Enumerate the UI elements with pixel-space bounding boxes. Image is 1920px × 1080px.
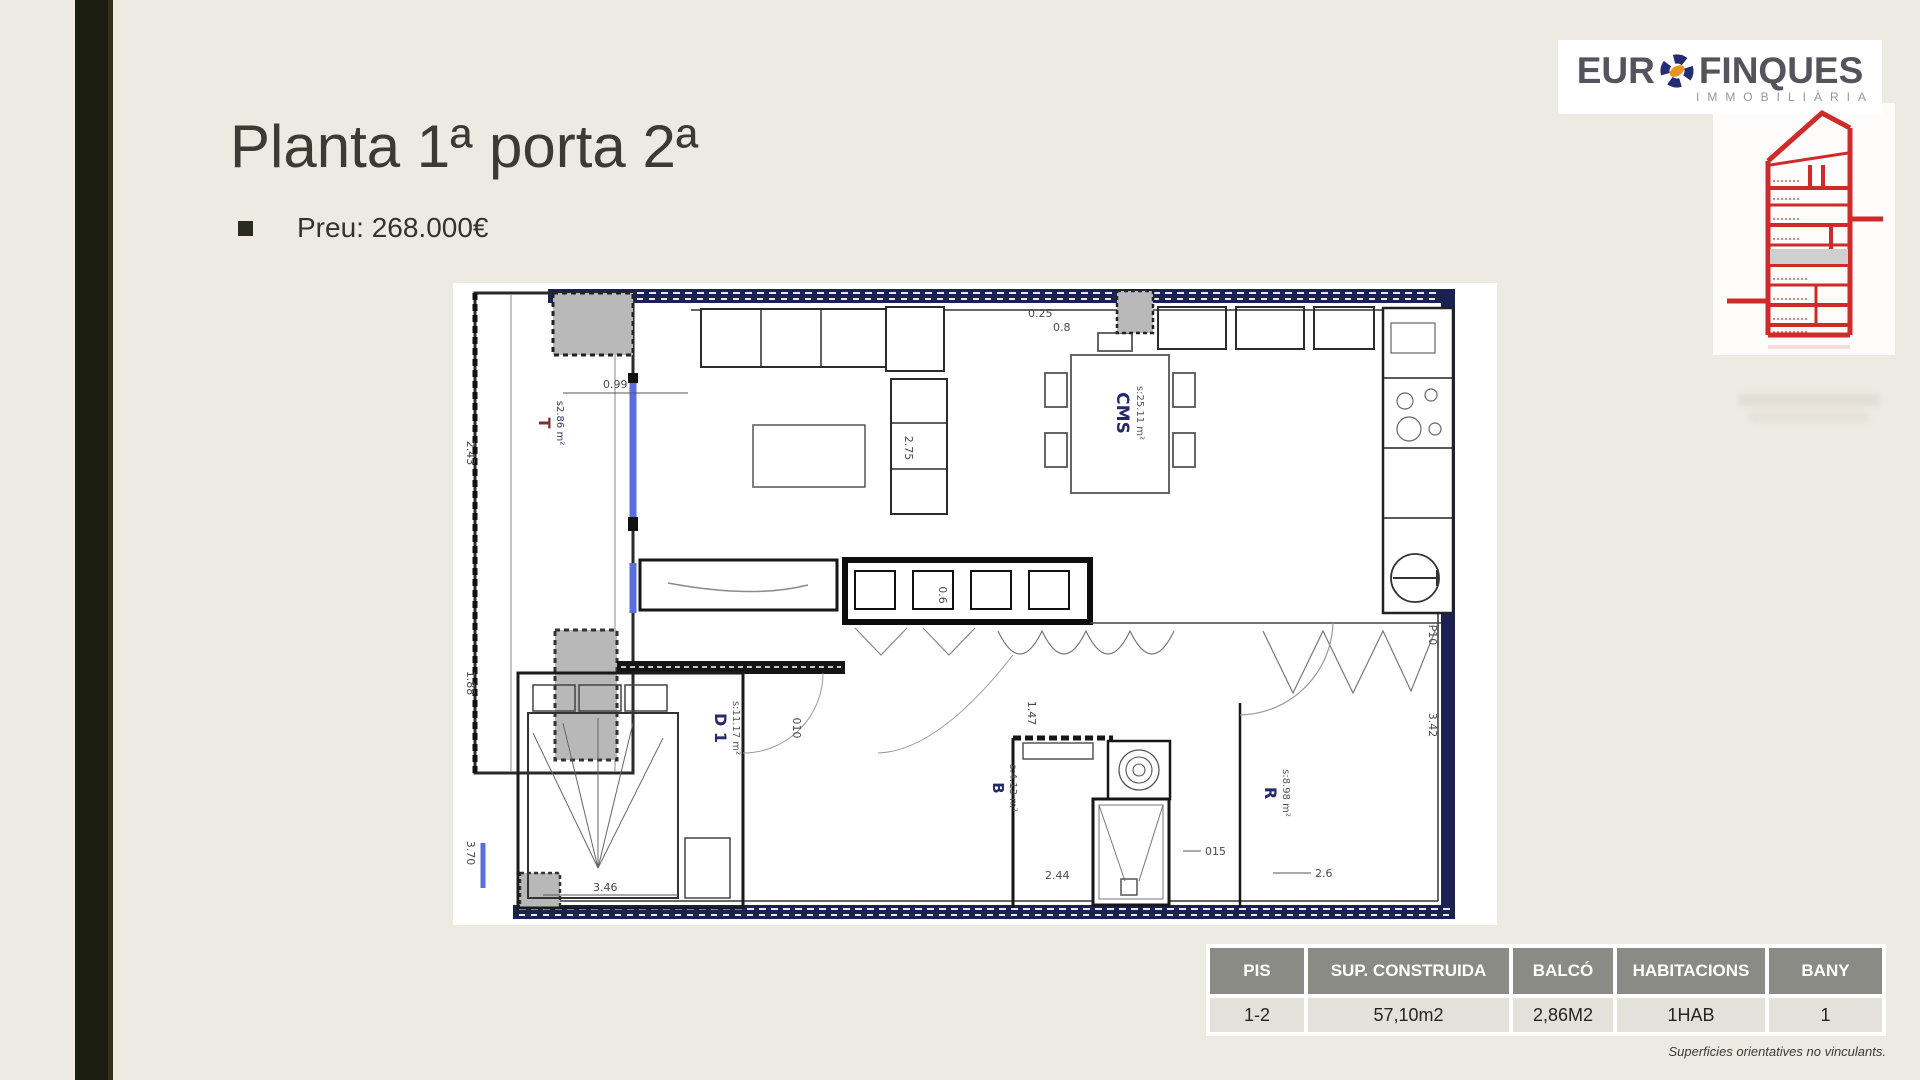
room-label-D1: D 1 [711,713,730,743]
page-title: Planta 1ª porta 2ª [230,112,698,181]
header-cell-habitacions: HABITACIONS [1617,948,1765,994]
cell-bany: 1 [1769,998,1882,1032]
svg-text:2.43: 2.43 [464,441,477,466]
cell-sup-construida: 57,10m2 [1308,998,1509,1032]
building-sketch-svg [1713,103,1895,355]
svg-text:0.8: 0.8 [1053,321,1071,334]
kitchen [1383,308,1453,613]
floor-plan: T s2.86 m² CMS s:25.11 m² D 1 s:11.17 m²… [453,283,1497,925]
room-area-D1: s:11.17 m² [730,701,741,755]
svg-text:P10: P10 [1426,625,1439,646]
living-room-furniture [701,307,947,514]
room-label-B: B [989,782,1007,793]
building-section-sketch [1713,103,1895,355]
header-cell-pis: PIS [1210,948,1304,994]
svg-text:2.75: 2.75 [902,436,915,461]
floor-plan-svg: T s2.86 m² CMS s:25.11 m² D 1 s:11.17 m²… [453,283,1497,925]
header-cell-sup-construida: SUP. CONSTRUIDA [1308,948,1509,994]
spec-table: PIS SUP. CONSTRUIDA BALCÓ HABITACIONS BA… [1206,944,1886,1036]
room-label-R: R [1261,787,1280,799]
svg-text:0.25: 0.25 [1028,307,1053,320]
svg-text:0.99: 0.99 [603,378,628,391]
sketch-background [1713,103,1895,355]
closet-arcs [998,623,1435,715]
tv-sideboard [640,560,837,610]
table-footnote: Superficies orientatives no vinculants. [1206,1044,1886,1059]
spec-table-data-row: 1-2 57,10m2 2,86M2 1HAB 1 [1210,998,1882,1032]
cell-balco: 2,86M2 [1513,998,1613,1032]
room-area-R: s:8.98 m² [1280,769,1291,817]
interior-walls [483,623,1441,908]
left-accent-bar [75,0,112,1080]
logo-subtitle: IMMOBILIÀRIA [1564,90,1876,104]
svg-text:3.42: 3.42 [1426,713,1439,738]
cell-habitacions: 1HAB [1617,998,1765,1032]
room-area-B: s:4.13 m² [1007,764,1018,812]
price-label: Preu: 268.000€ [297,212,489,244]
header-cell-balco: BALCÓ [1513,948,1613,994]
top-wall-hatch [1117,291,1153,333]
cell-pis: 1-2 [1210,998,1304,1032]
svg-text:3.70: 3.70 [464,841,477,866]
wardrobe [845,560,1090,655]
room-area-CMS: s:25.11 m² [1134,386,1145,440]
svg-text:010: 010 [790,718,803,739]
pinwheel-logo-icon [1658,52,1696,90]
room-area-T: s2.86 m² [554,401,565,445]
upper-cabinets [1158,307,1374,349]
room-label-T: T [535,418,554,429]
building-reflection [1735,392,1887,432]
logo-word-finques: FINQUES [1699,50,1863,92]
left-accent-bar-edge [108,0,113,1080]
bullet-icon [238,221,253,236]
room-label-CMS: CMS [1112,392,1132,434]
svg-text:2.44: 2.44 [1045,869,1070,882]
logo-row: EUR FINQUES [1564,50,1876,92]
glass-partition [628,373,638,613]
highlighted-floor-slab [1770,249,1848,264]
spec-table-header-row: PIS SUP. CONSTRUIDA BALCÓ HABITACIONS BA… [1210,948,1882,994]
svg-text:015: 015 [1205,845,1226,858]
header-cell-bany: BANY [1769,948,1882,994]
svg-text:1.47: 1.47 [1025,701,1038,726]
logo-word-eur: EUR [1577,50,1655,92]
svg-text:1.88: 1.88 [464,671,477,696]
price-row: Preu: 268.000€ [238,212,489,244]
svg-text:2.6: 2.6 [1315,867,1333,880]
svg-text:0.6: 0.6 [936,586,949,604]
svg-text:3.46: 3.46 [593,881,618,894]
